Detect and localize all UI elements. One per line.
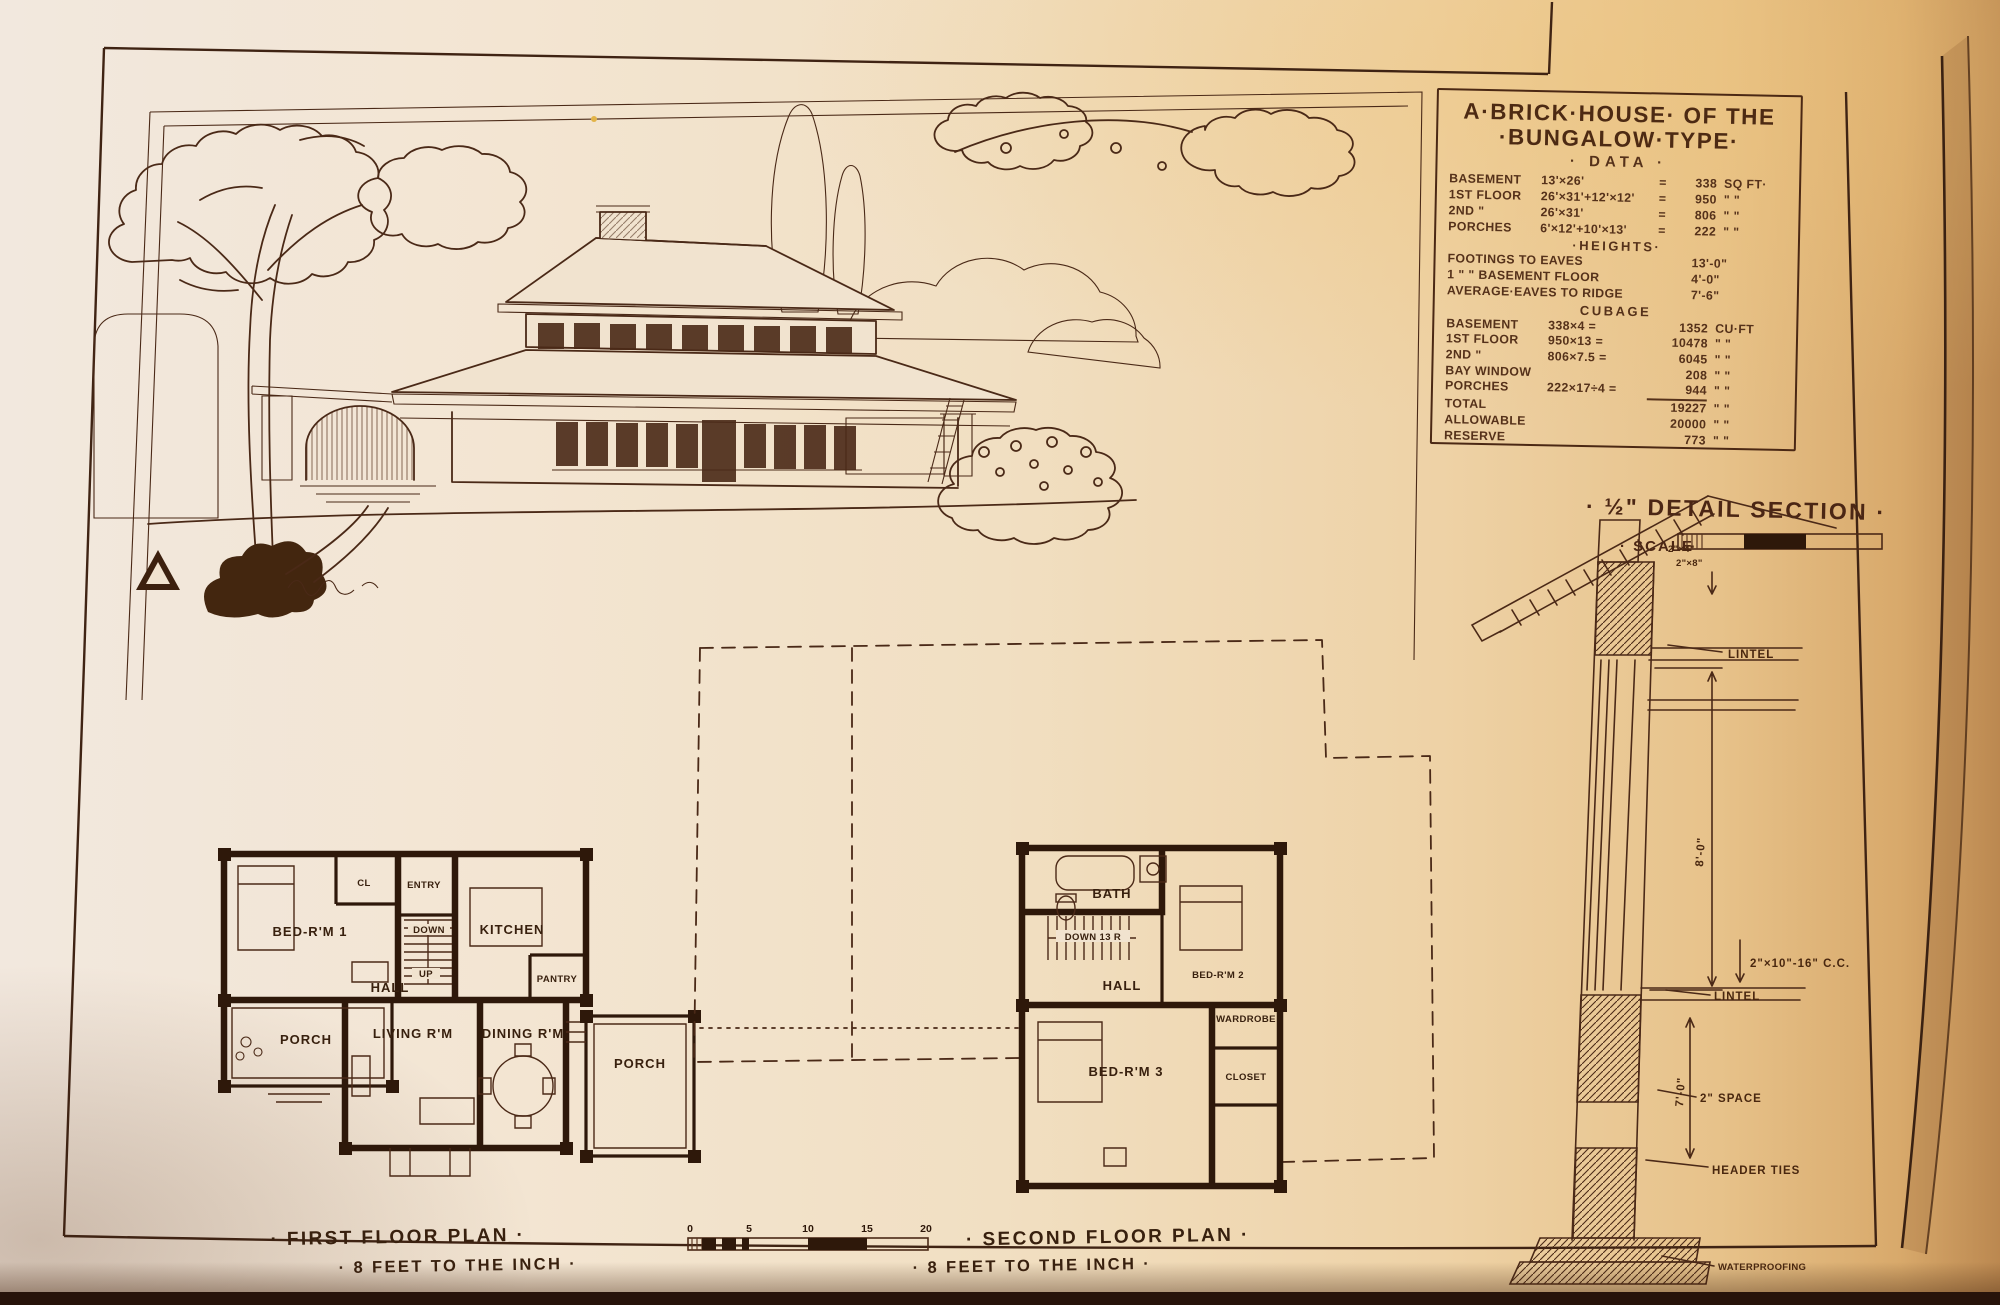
- second-floor-caption: · SECOND FLOOR PLAN ·: [966, 1225, 1250, 1251]
- joists-label: 2"×10"-16" C.C.: [1750, 958, 1850, 970]
- page-curl: [1902, 36, 1973, 1254]
- data-panel: A·BRICK·HOUSE· OF THE ·BUNGALOW·TYPE· · …: [1430, 88, 1803, 451]
- panel-title-line2: ·BUNGALOW·TYPE·: [1450, 123, 1788, 155]
- stair-label-down: DOWN: [413, 925, 445, 936]
- room-label-entry: ENTRY: [407, 880, 441, 891]
- room-label-pantry: PANTRY: [537, 974, 578, 985]
- scale-tick-0: 0: [687, 1223, 693, 1235]
- large-tree: [109, 125, 526, 594]
- dim-7ft-label: 7'-0": [1674, 1077, 1688, 1108]
- paper-speck: [591, 116, 597, 122]
- second-floor-plan: BATH DOWN 13 R HALL BED-R'M 2 WARDROBE B…: [694, 640, 1434, 1193]
- second-story-windows: [538, 323, 852, 353]
- scale-tick-5: 5: [746, 1223, 752, 1235]
- scale-tick-20: 20: [920, 1223, 932, 1235]
- space-label: 2" SPACE: [1700, 1093, 1762, 1105]
- room-label-closet: CL: [357, 878, 370, 889]
- wall-piers: [218, 848, 701, 1163]
- room-label-hall2: HALL: [1103, 978, 1142, 993]
- stair-label-down2: DOWN 13 R: [1065, 932, 1121, 943]
- room-label-hall: HALL: [371, 980, 410, 995]
- room-label-wardrobe: WARDROBE: [1216, 1014, 1276, 1025]
- room-label-porch-left: PORCH: [280, 1032, 332, 1047]
- room-label-bedroom1: BED-R'M 1: [273, 924, 348, 939]
- stair-label-up: UP: [419, 969, 433, 980]
- rafter-note-b: 2"×8": [1676, 558, 1703, 569]
- room-label-bedroom2: BED-R'M 2: [1192, 970, 1244, 981]
- room-label-kitchen: KITCHEN: [480, 922, 545, 937]
- book-edge-strip: [0, 1292, 2000, 1305]
- room-label-closet2: CLOSET: [1226, 1072, 1267, 1083]
- first-floor-caption: · FIRST FLOOR PLAN ·: [270, 1225, 525, 1250]
- scale-tick-15: 15: [861, 1223, 873, 1235]
- flowering-shrub: [938, 428, 1122, 544]
- detail-section: · ½" DETAIL SECTION · · SCALE: [1472, 493, 1887, 1284]
- house-illustration: [252, 206, 1016, 502]
- room-label-dining: DINING R'M: [482, 1026, 564, 1041]
- dim-8ft-label: 8'-0": [1694, 837, 1708, 868]
- perspective-drawing: [94, 93, 1355, 618]
- room-label-bedroom3: BED-R'M 3: [1089, 1064, 1164, 1079]
- base-shrub: [204, 541, 327, 617]
- lintel-upper-label: LINTEL: [1728, 649, 1774, 661]
- first-story-windows: [556, 420, 856, 482]
- porch-flowers: [236, 1037, 262, 1060]
- room-label-bath: BATH: [1092, 886, 1131, 901]
- room-label-porch-right: PORCH: [614, 1056, 666, 1071]
- rafter-note-a: 2"×4": [1668, 544, 1695, 555]
- header-ties-label: HEADER TIES: [1712, 1165, 1800, 1177]
- page-bottom-shadow: [0, 1262, 2000, 1292]
- detail-scale-bar: [1678, 534, 1882, 549]
- scanned-plate-page: BED-R'M 1 CL ENTRY KITCHEN PANTRY HALL L…: [0, 0, 2000, 1305]
- lintel-lower-label: LINTEL: [1714, 991, 1760, 1003]
- north-arrow-icon: [136, 550, 180, 590]
- room-label-living: LIVING R'M: [373, 1026, 453, 1041]
- scale-tick-10: 10: [802, 1223, 814, 1235]
- first-floor-plan: BED-R'M 1 CL ENTRY KITCHEN PANTRY HALL L…: [218, 848, 701, 1176]
- background-trees: [846, 258, 1138, 342]
